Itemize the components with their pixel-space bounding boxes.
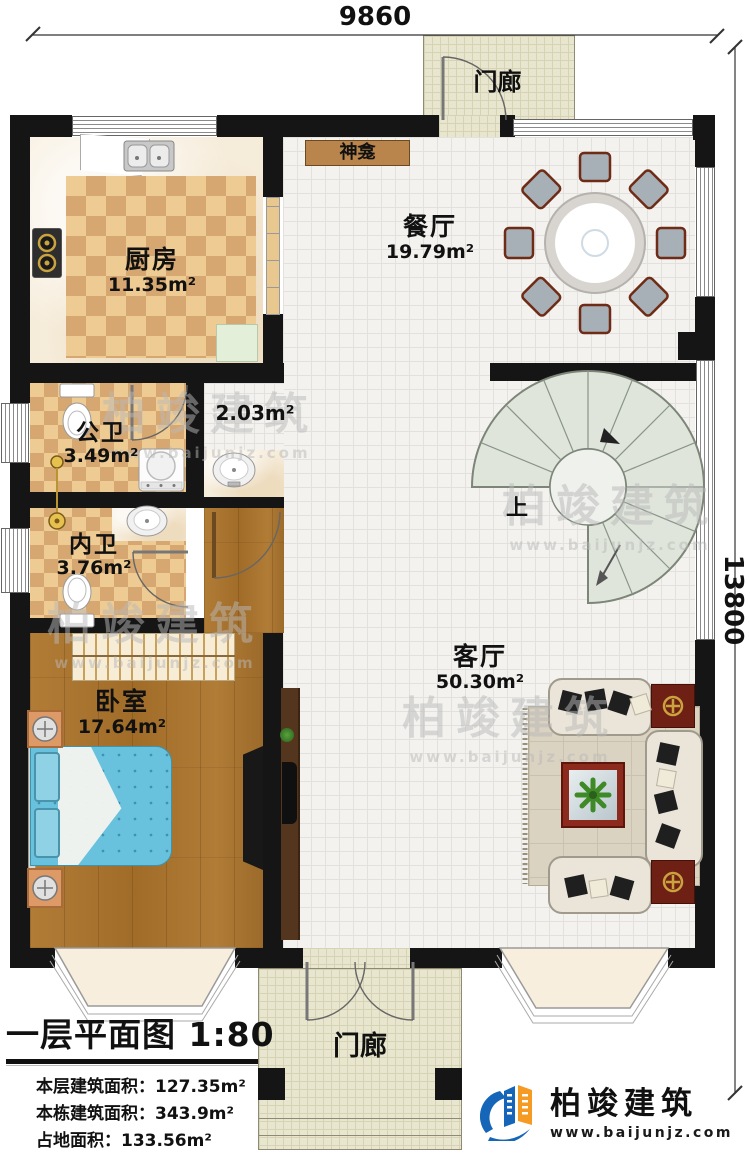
wall-bedroom-top [10,618,204,633]
wall-bottom-c [410,948,502,968]
wall-top-corner [693,115,715,140]
wall-bath-divider [10,492,204,508]
shrine-label: 神龛 [305,143,410,164]
sofa-bottom [548,856,652,914]
storey-height-line: 层高：3.8m [36,1153,275,1157]
kitchen-cabinet [216,324,258,362]
floor-plan-canvas: 柏竣建筑 www.baijunjz.com 柏竣建筑 www.baijunjz.… [0,0,750,1157]
wall-bottom-b [235,948,303,968]
bedroom-tv [243,746,263,870]
wall-stairs-top [490,363,715,381]
kitchen-label: 厨房 11.35m² [92,246,212,297]
bay-window-right [495,948,673,1023]
title-underline [6,1059,258,1064]
side-table-2 [651,860,695,904]
dining-top-window [513,119,693,136]
company-logo-text: 柏竣建筑 www.baijunjz.com [550,1078,733,1141]
nightstand-2 [27,868,63,908]
closet [72,633,235,681]
porch-top-label: 门廊 [445,62,550,97]
side-table-1 [651,684,695,728]
wall-kitchen-bottom [10,363,284,383]
living-tv [282,762,297,824]
closet-rod [72,655,235,657]
wall-right-b [695,297,715,360]
dimension-right: 13800 [718,540,748,660]
footprint-area-line: 占地面积：133.56m² [36,1126,275,1151]
bed-pillow-1 [34,752,60,802]
title-underline-thin [6,1065,258,1066]
dimension-top: 9860 [315,2,435,32]
inner-bath-window [1,528,29,593]
kitchen-counter-corner [80,134,150,176]
wall-top-a [10,115,72,137]
living-label: 客厅 50.30m² [400,643,560,694]
inner-bath-label: 内卫 3.76m² [38,532,150,580]
porch-top-door-gap [439,115,500,137]
porch-pillar-right [435,1068,462,1100]
wall-right-a [695,140,715,167]
cabinet-plant [280,728,294,742]
porch-step-line-2 [258,1135,462,1136]
sofa-top [548,678,652,736]
title-block: 一层平面图 1:80 本层建筑面积：127.35m² 本栋建筑面积：343.9m… [6,1008,275,1157]
hall-basin-counter [204,450,284,497]
kitchen-sliding-door[interactable] [266,197,280,315]
sofa-right [645,730,703,868]
wall-bottom-d [668,948,715,968]
company-logo: 柏竣建筑 www.baijunjz.com [480,1078,733,1141]
bedroom-label: 卧室 17.64m² [62,688,182,739]
hall-area-label: 2.03m² [200,402,310,425]
wall-bedroom-right [263,633,283,948]
company-logo-icon [480,1079,540,1141]
plan-title: 一层平面图 1:80 [6,1008,275,1056]
wall-bottom-a [10,948,55,968]
bed-pillow-2 [34,808,60,858]
building-area-line: 本栋建筑面积：343.9m² [36,1099,275,1124]
public-bath-label: 公卫 3.49m² [45,420,157,468]
corridor-floor [204,508,284,633]
stove [32,228,62,278]
stairs-right-window [696,360,715,640]
coffee-table-glass [569,770,617,820]
stairs-up-label: 上 [500,496,534,521]
porch-step-line-1 [258,1118,462,1119]
wall-corridor-top [204,497,284,508]
porch-bottom-label: 门廊 [305,1024,415,1063]
wall-kitchen-dining-a [263,137,283,197]
dining-label: 餐厅 19.79m² [355,213,505,264]
dining-right-window [696,167,715,297]
wall-right-stub [678,332,695,360]
kitchen-window [72,116,217,136]
wall-top-b [217,115,439,137]
porch-bottom-door-gap [302,948,410,968]
public-bath-window [1,403,29,463]
floor-area-line: 本层建筑面积：127.35m² [36,1072,275,1097]
nightstand-1 [27,710,63,748]
